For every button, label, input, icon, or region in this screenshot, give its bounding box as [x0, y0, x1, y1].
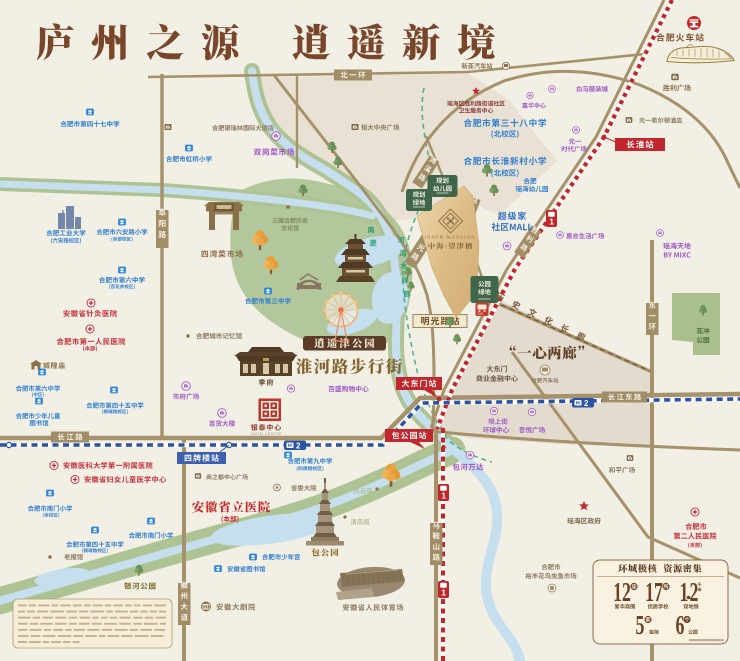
svg-text:YINTAI CENTRE: YINTAI CENTRE [250, 432, 282, 436]
svg-text:1: 1 [680, 577, 689, 607]
svg-text:17: 17 [645, 577, 663, 607]
svg-text:DG: DG [478, 312, 484, 316]
svg-text:1: 1 [549, 217, 554, 227]
svg-text:INNER MANSION: INNER MANSION [425, 235, 476, 240]
svg-text:2: 2 [296, 442, 301, 451]
svg-text:2: 2 [690, 577, 699, 607]
svg-text:6: 6 [676, 610, 685, 640]
svg-text:2: 2 [584, 399, 589, 408]
svg-text:1: 1 [441, 491, 446, 501]
svg-text:5: 5 [636, 610, 645, 640]
svg-text:12: 12 [613, 577, 631, 607]
svg-text:1: 1 [441, 588, 446, 598]
